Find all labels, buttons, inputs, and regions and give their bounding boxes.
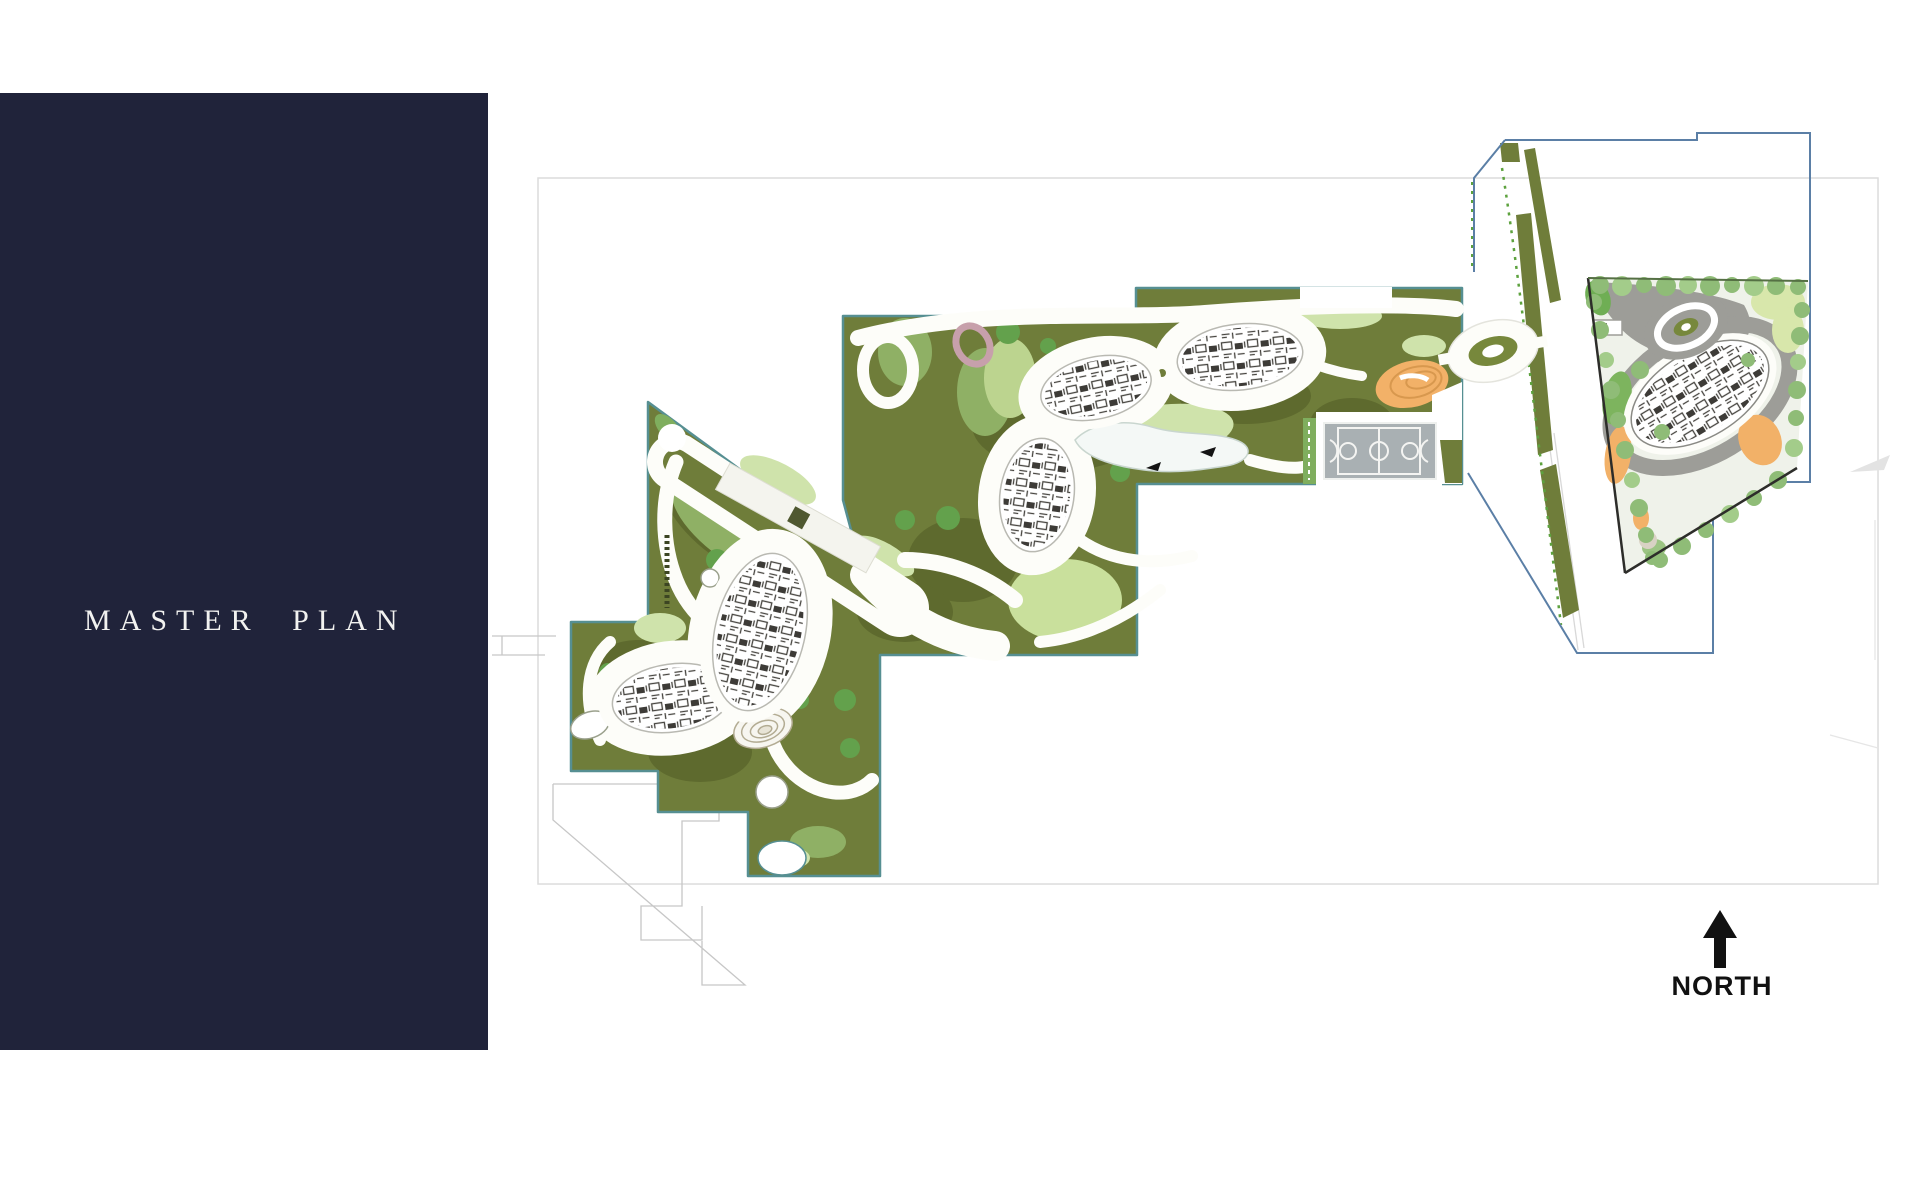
green-parcels (567, 287, 1462, 876)
basketball-court (1303, 412, 1442, 488)
slide: MASTER PLAN (0, 0, 1920, 1180)
master-plan-drawing: NORTH (0, 0, 1920, 1180)
north-arrow-icon (1703, 910, 1737, 968)
north-indicator: NORTH (1672, 910, 1773, 1001)
entry-plaza (1300, 287, 1392, 308)
north-label: NORTH (1672, 971, 1773, 1001)
triangle-parcel (1581, 276, 1815, 573)
